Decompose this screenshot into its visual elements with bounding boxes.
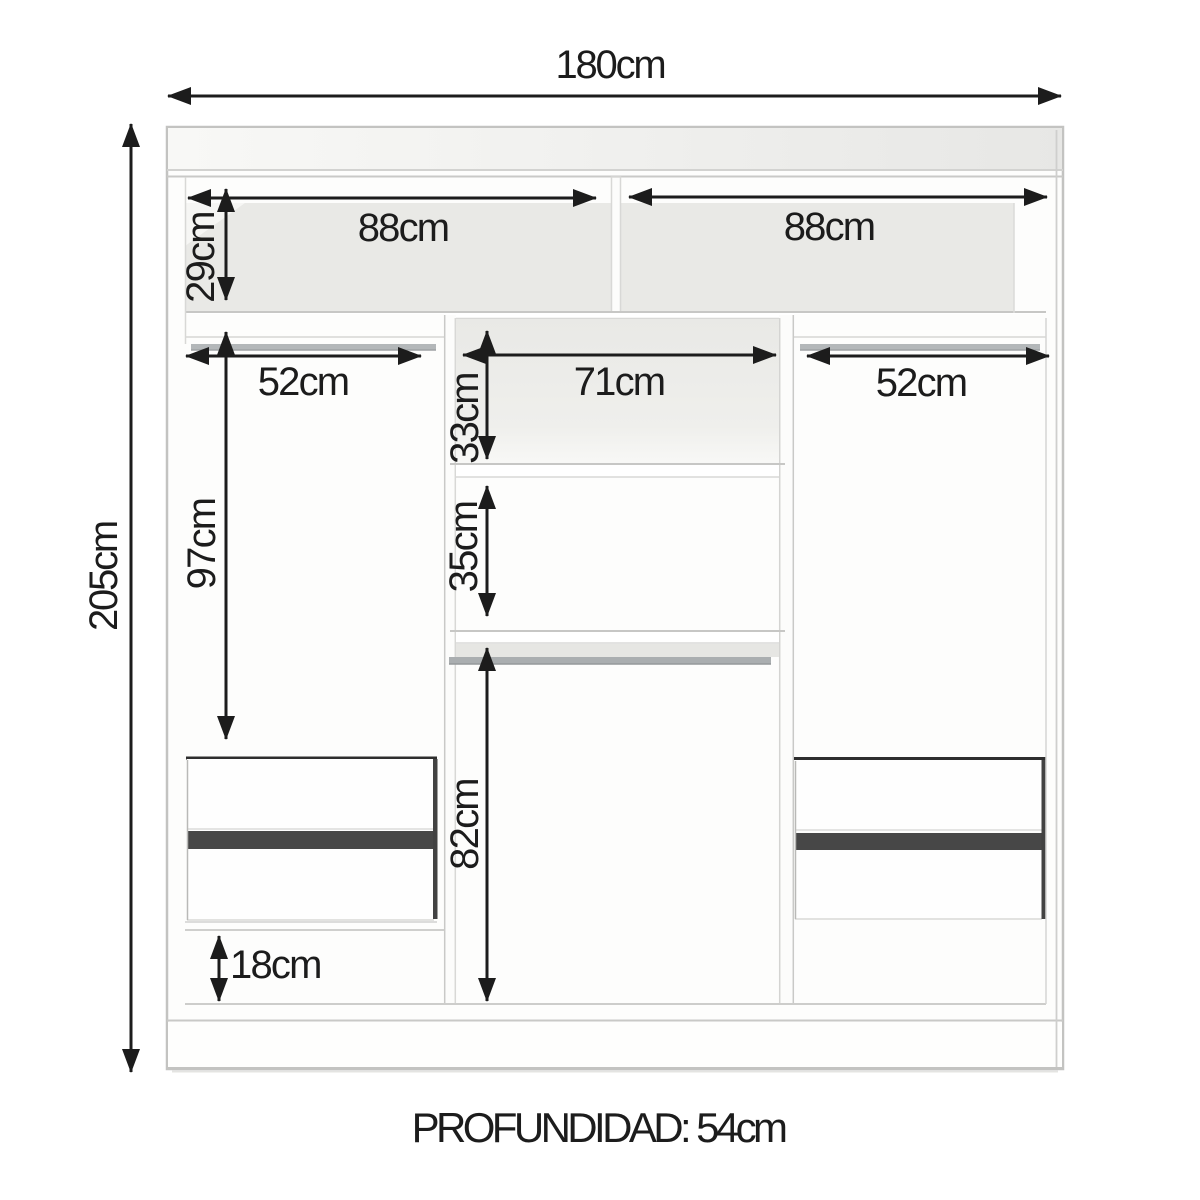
svg-text:29cm: 29cm bbox=[179, 212, 223, 303]
svg-text:52cm: 52cm bbox=[258, 360, 349, 404]
svg-text:88cm: 88cm bbox=[358, 206, 449, 250]
svg-text:PROFUNDIDAD: 54cm: PROFUNDIDAD: 54cm bbox=[412, 1104, 786, 1151]
svg-text:71cm: 71cm bbox=[574, 360, 665, 404]
svg-text:33cm: 33cm bbox=[443, 373, 487, 464]
svg-text:18cm: 18cm bbox=[230, 943, 321, 987]
svg-text:97cm: 97cm bbox=[180, 499, 224, 590]
svg-text:52cm: 52cm bbox=[876, 361, 967, 405]
svg-text:180cm: 180cm bbox=[555, 43, 664, 87]
svg-text:35cm: 35cm bbox=[442, 502, 486, 593]
svg-text:88cm: 88cm bbox=[784, 205, 875, 249]
svg-text:205cm: 205cm bbox=[82, 522, 126, 631]
svg-text:82cm: 82cm bbox=[443, 779, 487, 870]
